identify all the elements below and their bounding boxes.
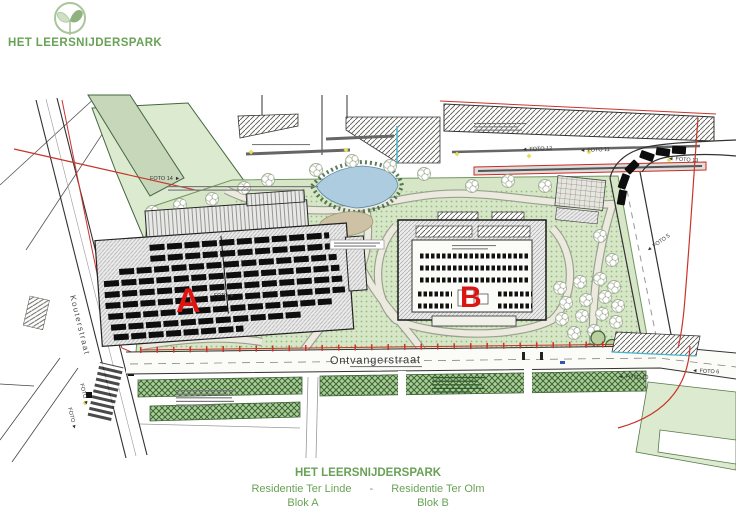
fence-bar — [246, 150, 350, 154]
foto-label: FOTO► — [214, 293, 235, 299]
footer: HET LEERSNIJDERSPARK Residentie Ter Lind… — [0, 466, 736, 511]
street-name-left: Kouterstraat — [68, 294, 92, 356]
paver-structure — [553, 176, 605, 225]
foto-label: ◄FOTO 5 — [646, 233, 672, 254]
residence-right: Residentie Ter Olm — [391, 483, 484, 495]
building-a-label: A — [176, 282, 201, 320]
arrow-left-icon: ◄ — [692, 368, 698, 374]
arrow-right-icon: ► — [82, 400, 89, 407]
arrow-left-icon: ◄ — [522, 147, 528, 153]
building-b-label: B — [460, 281, 482, 314]
street-name-bottom: Ontvangerstraat — [330, 354, 421, 367]
blok-a-label: Blok A — [238, 496, 368, 511]
crosswalk — [87, 362, 123, 422]
residence-left: Residentie Ter Linde — [251, 483, 351, 495]
foto-label: ◄FOTO 10 — [618, 374, 648, 381]
arrow-left-icon: ◄ — [618, 374, 624, 380]
footer-residences: Residentie Ter Linde-Residentie Ter Olm — [0, 482, 736, 497]
foto-label: FOTO► — [66, 407, 77, 430]
foto-label: ◄FOTO 12 — [522, 146, 552, 153]
footer-blocks: Blok A Blok B — [0, 496, 736, 511]
blok-b-label: Blok B — [368, 496, 498, 511]
footer-title: HET LEERSNIJDERSPARK — [0, 466, 736, 482]
arrow-right-icon: ► — [230, 293, 235, 299]
foto-label: ◄FOTO 11 — [580, 147, 610, 154]
arrow-right-icon: ► — [175, 176, 180, 182]
site-plan: Kouterstraat Ontvangerstraat A B FOTO 14… — [0, 0, 736, 514]
arrow-right-icon: ► — [70, 424, 77, 431]
foto-label: FOTO► — [78, 383, 89, 406]
arrow-left-icon: ◄ — [580, 148, 586, 154]
residence-separator: - — [370, 483, 374, 495]
arrow-left-icon: ◄ — [668, 156, 674, 162]
foto-label: FOTO 14► — [150, 176, 180, 182]
